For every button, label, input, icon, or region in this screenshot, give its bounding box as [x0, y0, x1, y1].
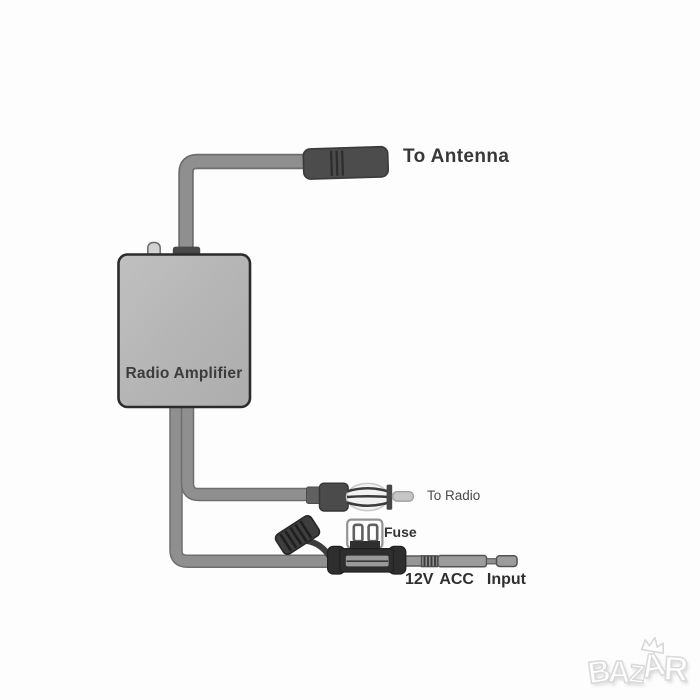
tail-end-tip — [497, 556, 518, 567]
radio-din-plug — [307, 483, 414, 511]
antenna-cable — [186, 162, 314, 263]
label-fuse: Fuse — [384, 524, 417, 540]
label-to-radio: To Radio — [427, 488, 480, 503]
plug-body — [320, 483, 349, 511]
amplifier-box — [119, 255, 251, 408]
antenna-connector — [303, 146, 388, 179]
holder-cap — [274, 514, 322, 556]
label-radio-amplifier: Radio Amplifier — [118, 365, 250, 383]
watermark-logo: BAZAR — [585, 645, 700, 699]
fuse-slot-right — [369, 525, 378, 541]
watermark-text: BAZAR — [587, 650, 687, 689]
fuse-slot-left — [354, 525, 363, 541]
wiring-artwork — [0, 0, 700, 700]
diagram-canvas: To Antenna Radio Amplifier To Radio Fuse… — [0, 0, 700, 700]
radio-cable — [188, 400, 317, 495]
power-lead-tail — [400, 556, 517, 567]
label-to-antenna: To Antenna — [403, 146, 509, 168]
plug-center-pin — [393, 492, 414, 502]
plug-collar — [387, 485, 393, 510]
tail-segment — [438, 556, 487, 567]
label-power-input: 12V ACC Input — [405, 571, 526, 589]
tail-neck — [487, 559, 498, 564]
